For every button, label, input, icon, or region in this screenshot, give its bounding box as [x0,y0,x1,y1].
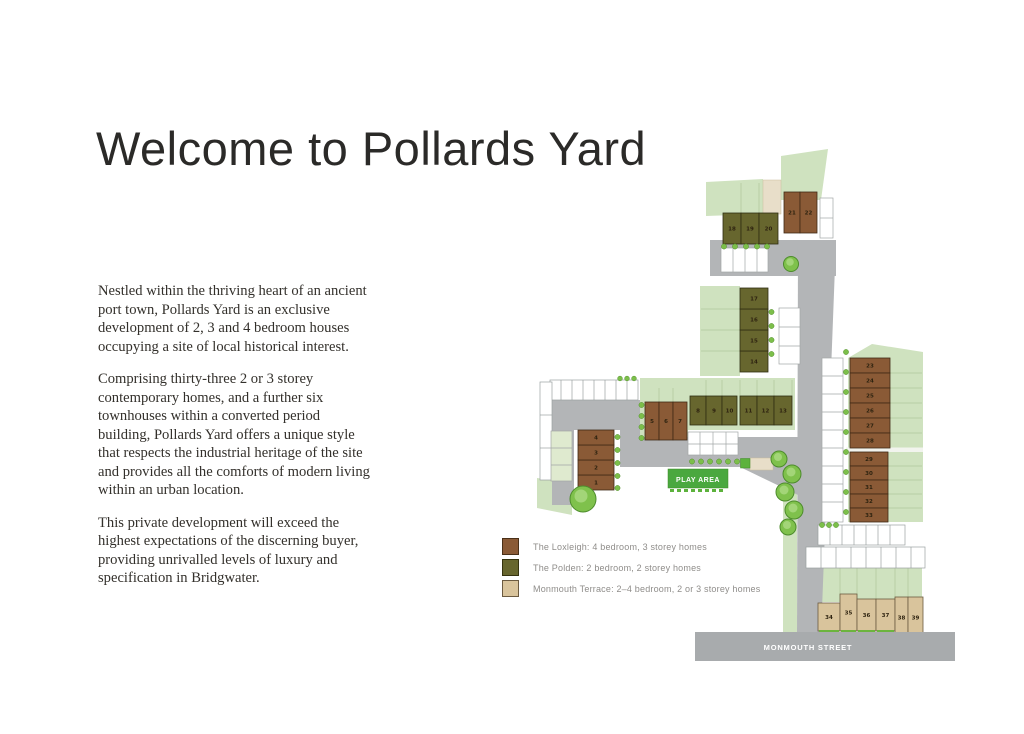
plot-number-33: 33 [865,513,873,519]
plot-number-23: 23 [866,364,874,370]
monmouth-swatch-icon [502,580,519,597]
monmouth-street: MONMOUTH STREET [695,632,955,661]
pad-junction [750,458,773,470]
plot-number-5: 5 [650,419,654,425]
plot-number-37: 37 [882,613,890,619]
tree-icon [783,465,801,483]
plot-number-14: 14 [750,360,758,366]
polden-swatch-icon [502,559,519,576]
plot-number-39: 39 [912,616,920,622]
plot-number-11: 11 [745,409,753,415]
plot-number-8: 8 [696,409,700,415]
garden-top-left [706,179,763,216]
plot-number-13: 13 [779,409,787,415]
plot-number-3: 3 [594,451,598,457]
intro-paragraph-2: Comprising thirty-three 2 or 3 storey co… [98,370,370,500]
plot-number-7: 7 [678,419,682,425]
plot-number-31: 31 [865,485,873,491]
plot-number-18: 18 [728,227,736,233]
site-plan: 1234567891011121314151617181920212223242… [530,140,960,665]
plot-number-36: 36 [863,613,871,619]
plot-number-20: 20 [765,227,773,233]
play-area: PLAY AREA [668,469,728,492]
plot-number-9: 9 [712,409,716,415]
plot-number-4: 4 [594,436,598,442]
play-area-label: PLAY AREA [676,477,720,484]
plot-number-15: 15 [750,339,758,345]
tree-icon [570,486,596,512]
plot-number-34: 34 [825,615,833,621]
plot-number-6: 6 [664,419,668,425]
plot-number-26: 26 [866,409,874,415]
tree-icon [771,451,787,467]
plot-number-35: 35 [845,611,853,617]
plot-number-2: 2 [594,466,598,472]
garden-stack-west [700,286,740,376]
tree-icon [780,519,796,535]
plot-number-28: 28 [866,439,874,445]
plot-number-38: 38 [898,616,906,622]
intro-paragraph-3: This private development will exceed the… [98,514,370,588]
plot-number-19: 19 [746,227,754,233]
plot-number-24: 24 [866,379,874,385]
intro-paragraph-1: Nestled within the thriving heart of an … [98,282,370,356]
plot-number-25: 25 [866,394,874,400]
plot-number-16: 16 [750,318,758,324]
plot-number-29: 29 [865,457,873,463]
plot-number-10: 10 [726,409,734,415]
plot-number-32: 32 [865,499,873,505]
plot-number-12: 12 [762,409,770,415]
street-label: MONMOUTH STREET [764,643,853,652]
tree-icon [776,483,794,501]
plot-number-17: 17 [750,297,758,303]
plot-number-30: 30 [865,471,873,477]
path-top-cluster [763,180,781,214]
intro-text: Nestled within the thriving heart of an … [98,282,370,602]
tree-icon [785,501,803,519]
plot-number-27: 27 [866,424,874,430]
plot-number-22: 22 [805,211,813,217]
plot-number-1: 1 [594,481,598,487]
loxleigh-swatch-icon [502,538,519,555]
tree-icon [784,257,799,272]
plot-number-21: 21 [788,211,796,217]
